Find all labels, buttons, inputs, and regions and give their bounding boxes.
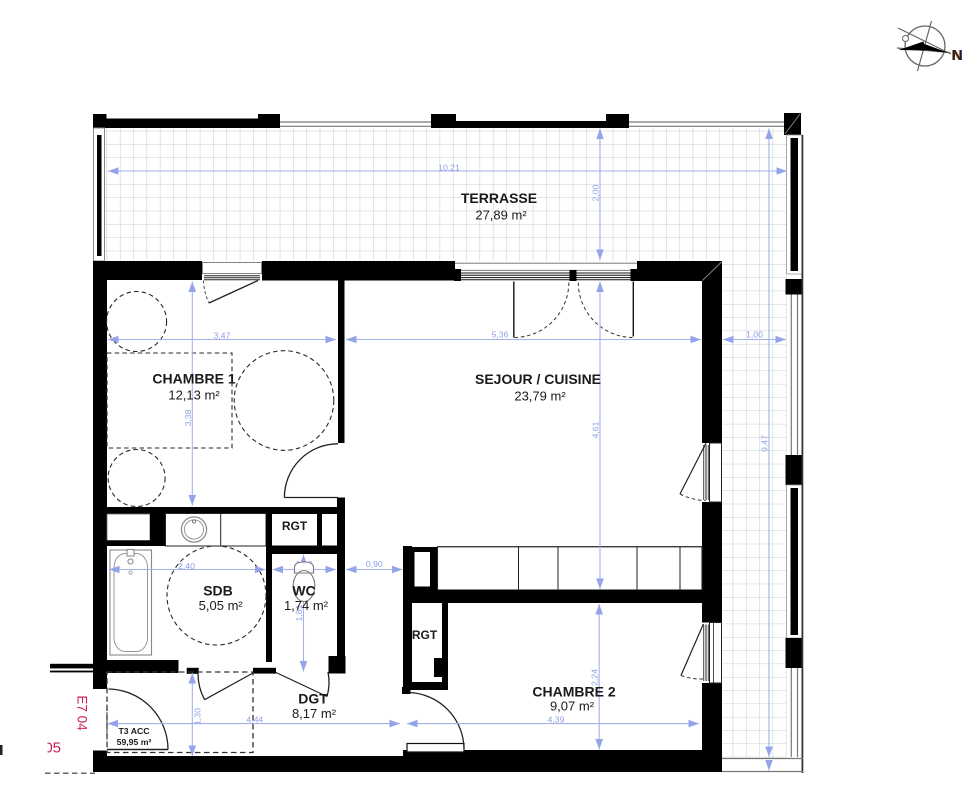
svg-text:10,21: 10,21: [438, 162, 460, 172]
svg-text:9,47: 9,47: [760, 435, 770, 452]
svg-text:WC: WC: [292, 583, 315, 599]
svg-text:N: N: [952, 47, 963, 64]
svg-text:DGT: DGT: [298, 690, 328, 706]
svg-text:T3 ACC: T3 ACC: [118, 726, 150, 736]
svg-text:4,61: 4,61: [591, 421, 601, 438]
svg-text:3,38: 3,38: [183, 409, 193, 426]
svg-text:2,40: 2,40: [178, 561, 195, 571]
svg-text:CHAMBRE 2: CHAMBRE 2: [532, 683, 615, 699]
svg-text:1,00: 1,00: [746, 330, 763, 340]
svg-text:5,05 m²: 5,05 m²: [199, 598, 244, 613]
svg-text:TERRASSE: TERRASSE: [461, 190, 537, 206]
svg-text:SDB: SDB: [203, 583, 233, 599]
svg-text:9,07 m²: 9,07 m²: [550, 699, 595, 714]
svg-text:4,44: 4,44: [246, 715, 263, 725]
svg-text:1,30: 1,30: [193, 708, 203, 725]
svg-text:CHAMBRE 1: CHAMBRE 1: [152, 371, 235, 387]
svg-text:59,95 m²: 59,95 m²: [117, 737, 152, 747]
svg-text:5,36: 5,36: [492, 330, 509, 340]
svg-text:4,39: 4,39: [548, 714, 565, 724]
svg-text:8,17 m²: 8,17 m²: [292, 706, 337, 721]
svg-text:1,74 m²: 1,74 m²: [284, 598, 329, 613]
svg-text:SEJOUR / CUISINE: SEJOUR / CUISINE: [475, 371, 601, 387]
svg-text:12,13 m²: 12,13 m²: [168, 388, 220, 403]
svg-text:27,89 m²: 27,89 m²: [475, 208, 527, 223]
svg-text:RGT: RGT: [412, 628, 438, 642]
svg-text:RGT: RGT: [282, 519, 308, 533]
svg-text:3,47: 3,47: [214, 331, 231, 341]
svg-text:E7 04: E7 04: [75, 695, 90, 731]
svg-text:23,79 m²: 23,79 m²: [514, 389, 566, 404]
svg-text:0,90: 0,90: [366, 559, 383, 569]
svg-text:2,00: 2,00: [591, 184, 601, 201]
